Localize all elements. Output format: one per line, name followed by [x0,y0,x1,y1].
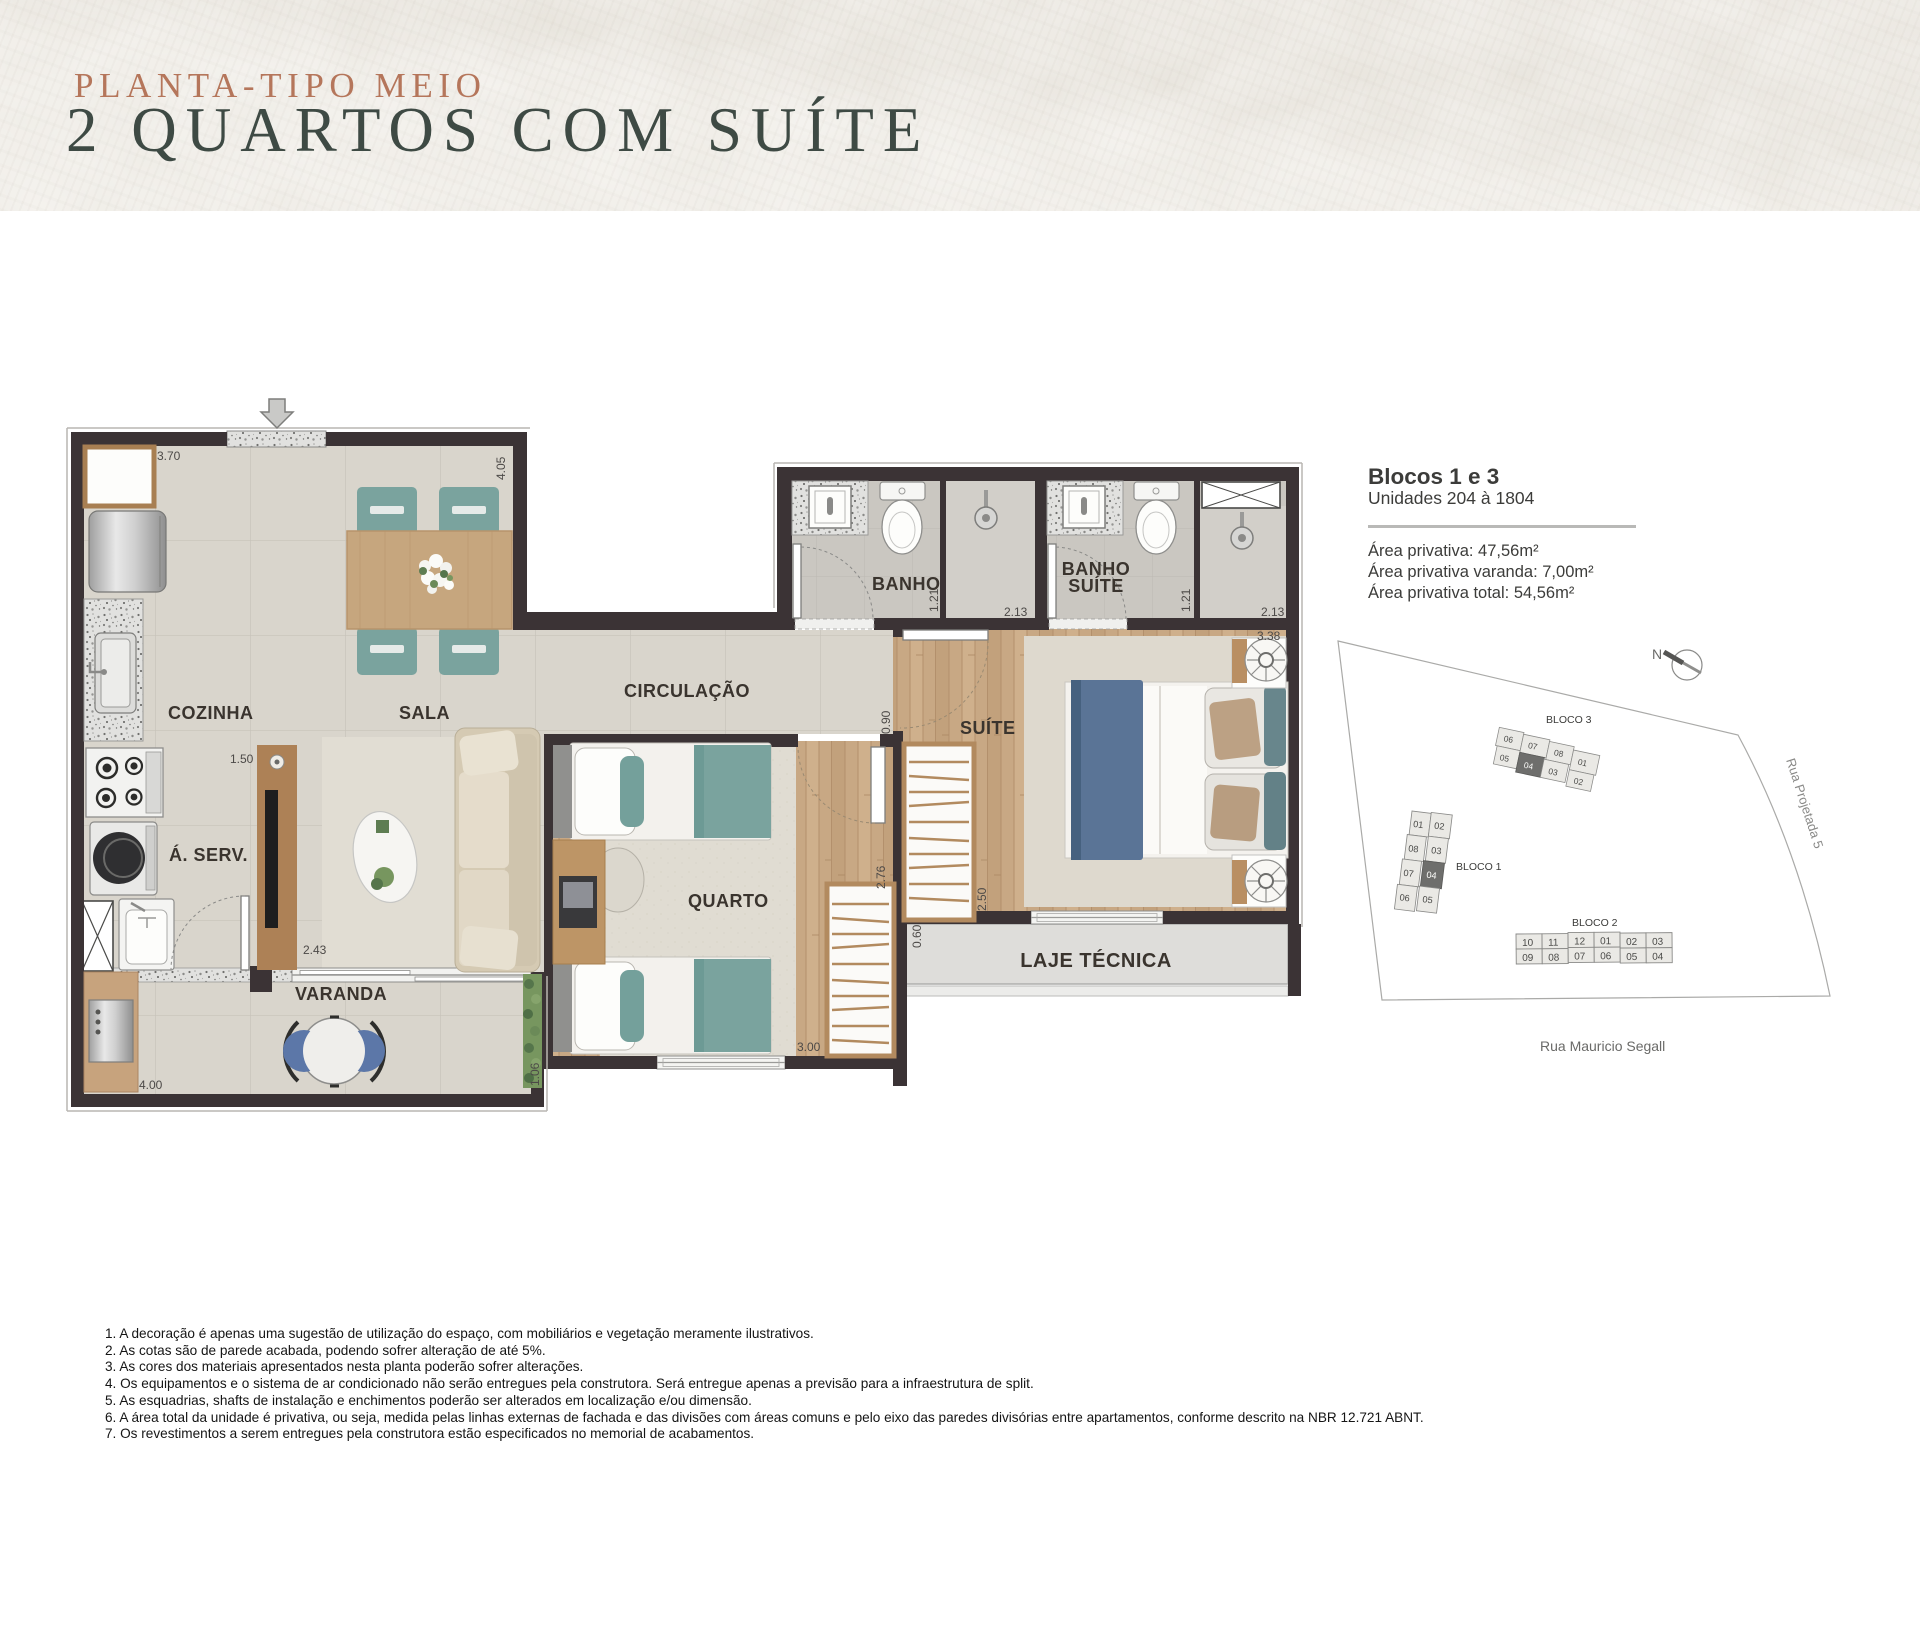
svg-text:Unidades 204 à 1804: Unidades 204 à 1804 [1368,488,1535,508]
svg-text:Área privativa total: 54,56m²: Área privativa total: 54,56m² [1368,583,1575,602]
svg-text:0.90: 0.90 [879,710,893,734]
svg-text:11: 11 [1548,938,1559,949]
svg-text:3.70: 3.70 [157,449,181,463]
svg-text:VARANDA: VARANDA [295,984,387,1004]
svg-text:08: 08 [1548,953,1560,964]
svg-text:01: 01 [1413,819,1424,830]
svg-text:SUÍTE: SUÍTE [1068,575,1124,596]
svg-text:Área privativa varanda: 7,00m²: Área privativa varanda: 7,00m² [1368,562,1594,581]
svg-text:Blocos 1 e 3: Blocos 1 e 3 [1368,464,1499,489]
svg-text:0.60: 0.60 [910,924,924,948]
svg-text:2.50: 2.50 [975,887,989,911]
svg-text:2.76: 2.76 [874,865,888,889]
svg-text:1.21: 1.21 [1179,588,1193,612]
svg-text:2.13: 2.13 [1261,605,1285,619]
svg-text:1.50: 1.50 [230,752,254,766]
svg-text:03: 03 [1652,937,1664,948]
svg-text:09: 09 [1522,953,1534,964]
svg-text:BLOCO 2: BLOCO 2 [1572,917,1618,929]
svg-text:1.21: 1.21 [927,588,941,612]
svg-text:Rua Mauricio Segall: Rua Mauricio Segall [1540,1038,1665,1054]
svg-text:COZINHA: COZINHA [168,703,254,723]
svg-text:08: 08 [1408,843,1419,854]
svg-text:06: 06 [1399,892,1410,903]
svg-text:QUARTO: QUARTO [688,891,769,911]
svg-text:2.43: 2.43 [303,943,327,957]
svg-text:BLOCO 1: BLOCO 1 [1456,861,1502,873]
svg-text:CIRCULAÇÃO: CIRCULAÇÃO [624,680,750,701]
svg-text:LAJE TÉCNICA: LAJE TÉCNICA [1020,949,1172,972]
svg-text:Rua Projetada 5: Rua Projetada 5 [1783,756,1826,850]
svg-text:Á. SERV.: Á. SERV. [169,844,248,865]
svg-text:03: 03 [1431,845,1442,856]
svg-text:SUÍTE: SUÍTE [960,717,1016,738]
svg-text:3.38: 3.38 [1257,629,1281,643]
svg-text:4.05: 4.05 [494,456,508,480]
svg-text:05: 05 [1626,952,1638,963]
svg-text:2.13: 2.13 [1004,605,1028,619]
svg-text:BLOCO 3: BLOCO 3 [1546,714,1592,726]
svg-text:04: 04 [1652,952,1664,963]
svg-text:02: 02 [1626,937,1638,948]
svg-text:05: 05 [1422,894,1433,905]
svg-text:01: 01 [1600,936,1612,947]
svg-text:02: 02 [1434,821,1445,832]
svg-text:07: 07 [1403,868,1414,879]
svg-text:06: 06 [1600,951,1612,962]
svg-text:10: 10 [1522,938,1534,949]
svg-text:12: 12 [1574,936,1586,947]
svg-text:3.00: 3.00 [797,1040,821,1054]
svg-text:Área privativa: 47,56m²: Área privativa: 47,56m² [1368,541,1539,560]
svg-text:4.00: 4.00 [139,1078,163,1092]
svg-text:07: 07 [1574,951,1586,962]
svg-text:04: 04 [1426,870,1437,881]
svg-text:N: N [1652,646,1662,662]
svg-text:SALA: SALA [399,703,450,723]
svg-text:1.06: 1.06 [528,1062,542,1086]
